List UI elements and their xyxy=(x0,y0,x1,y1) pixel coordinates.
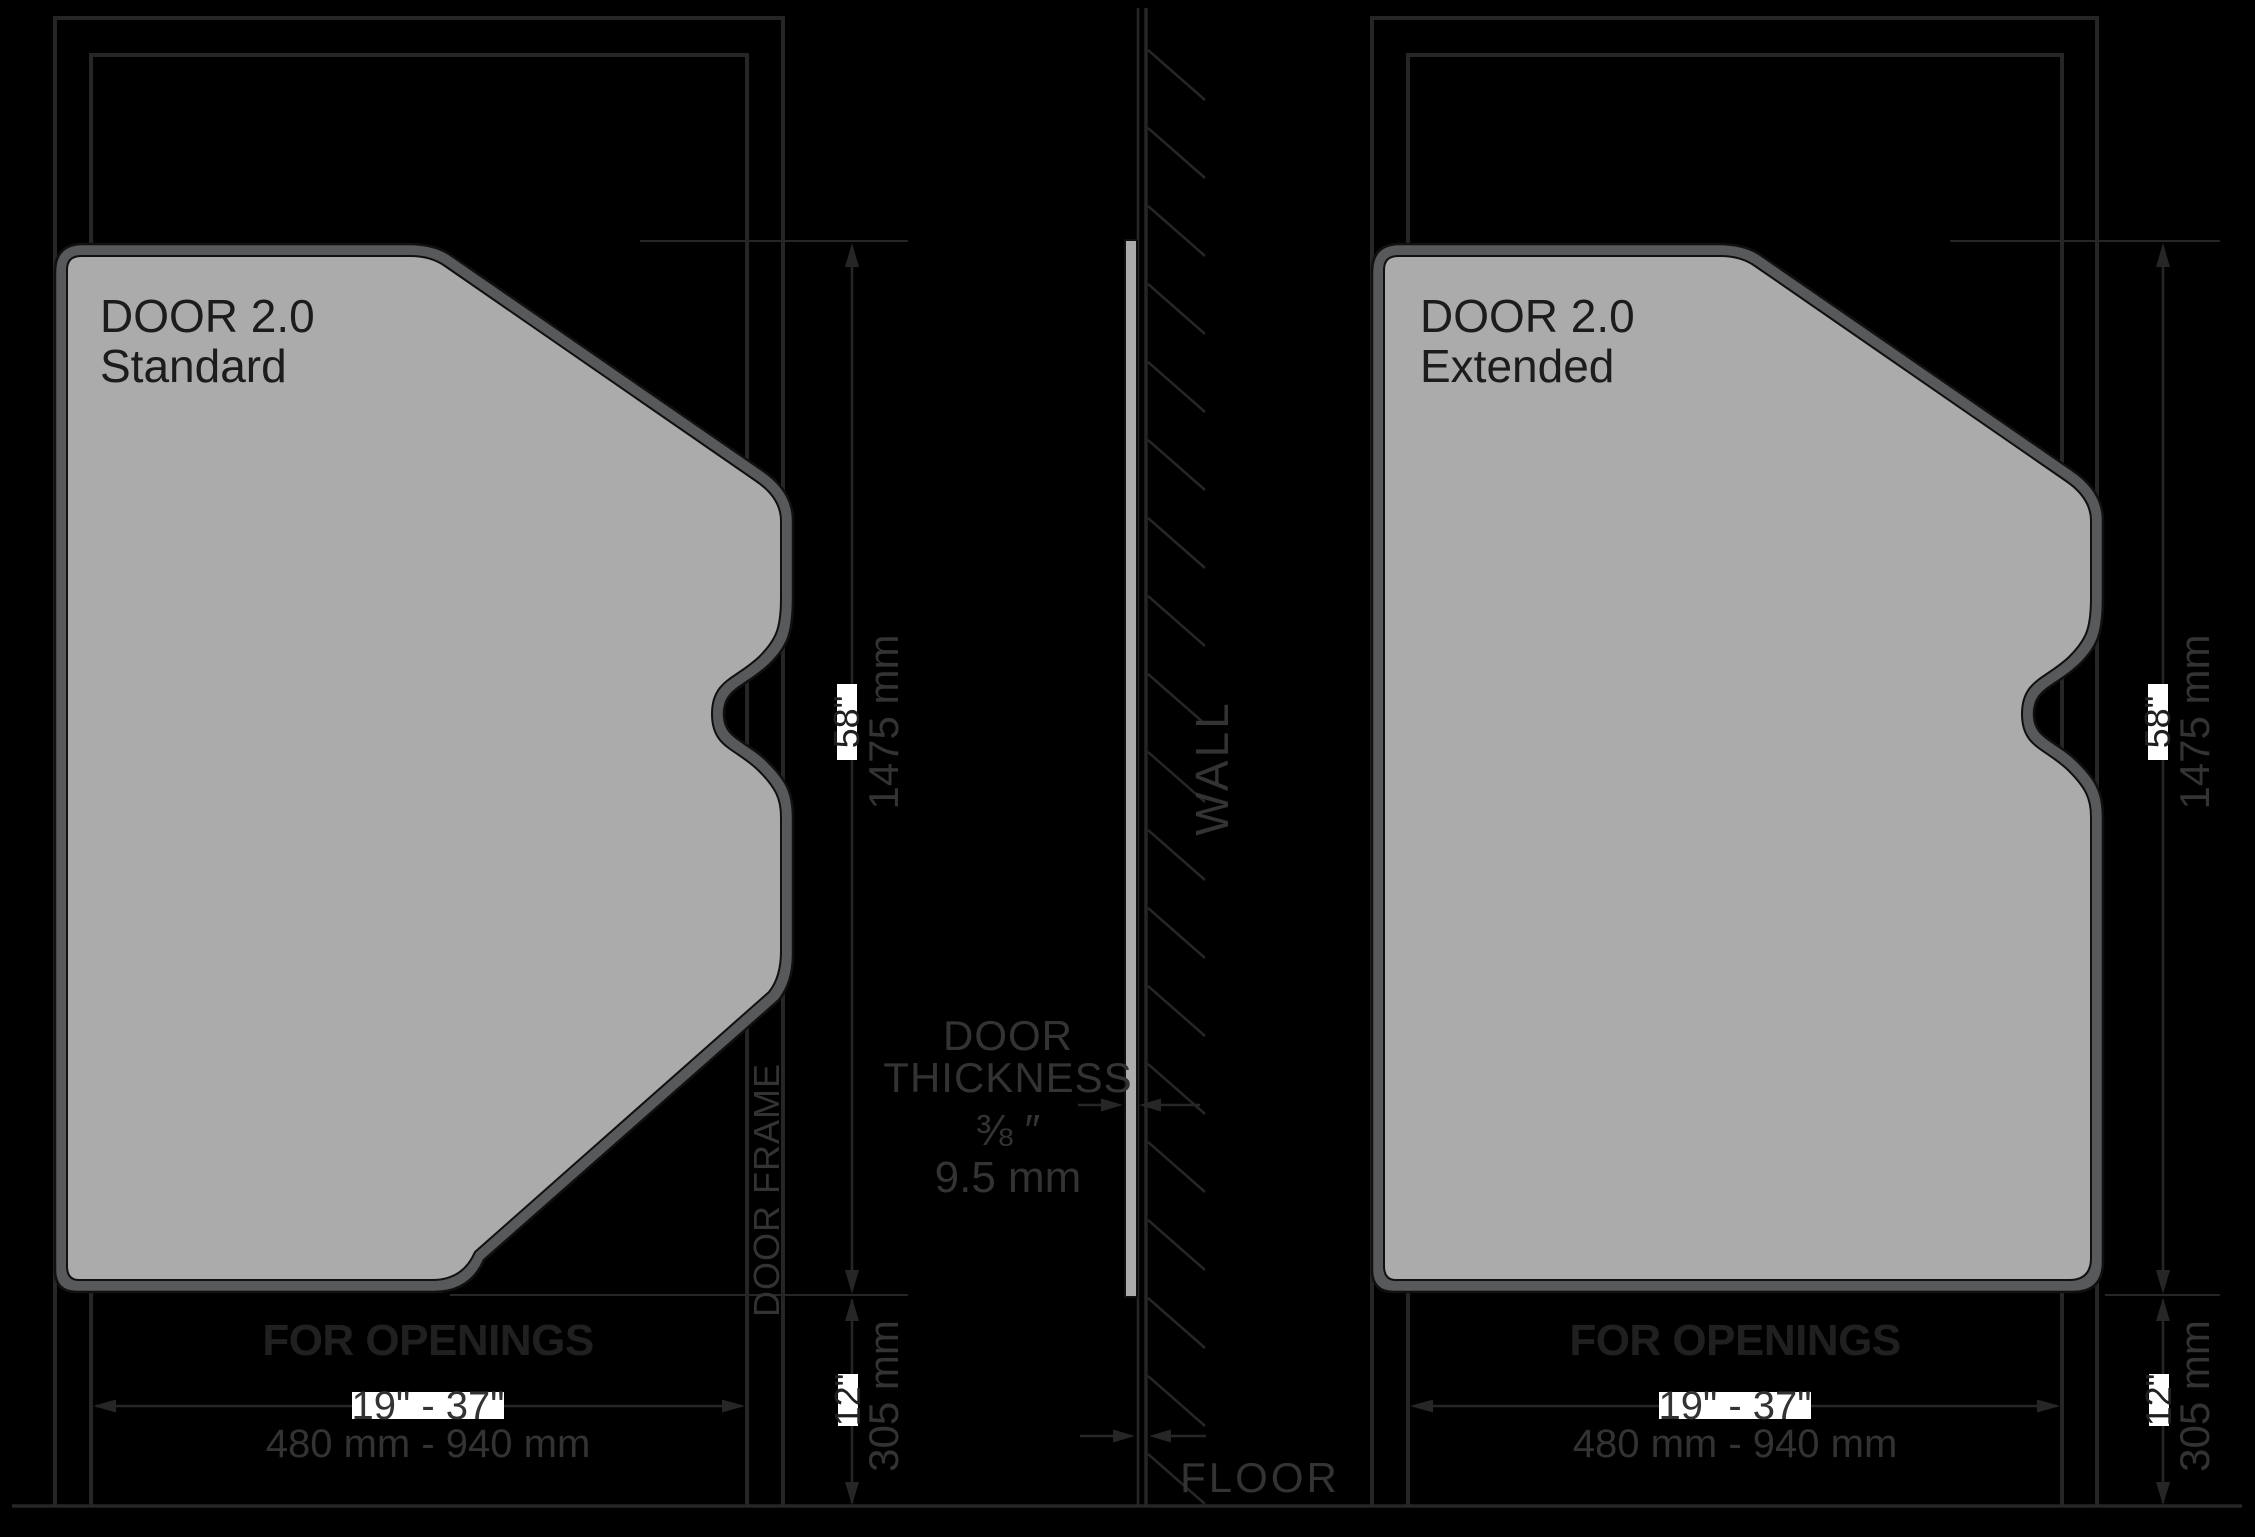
hatch-mark xyxy=(1148,362,1205,412)
door-frame-label: DOOR FRAME xyxy=(746,1063,787,1317)
hatch-mark xyxy=(1148,206,1205,256)
right-opening-width-dimension: FOR OPENINGS 19" - 37" 480 mm - 940 mm xyxy=(1410,1316,2060,1466)
right-opening-range-mm: 480 mm - 940 mm xyxy=(1573,1422,1898,1466)
left-door-title: DOOR 2.0 xyxy=(100,290,315,342)
left-bottom-gap-dimension: 12" 305 mm xyxy=(827,1298,907,1505)
door-thickness-inches: ⅜ ″ xyxy=(976,1106,1041,1155)
door-thickness-callout: DOOR THICKNESS ⅜ ″ 9.5 mm xyxy=(883,1012,1200,1202)
right-door-subtitle: Extended xyxy=(1420,340,1614,392)
hatch-mark xyxy=(1148,986,1205,1036)
diagram-canvas: 58" 1475 mm 12" 305 mm FOR OPENINGS 19" … xyxy=(0,0,2255,1537)
right-bottom-gap-dimension: 12" 305 mm xyxy=(2138,1298,2218,1505)
hatch-mark xyxy=(1148,284,1205,334)
technical-drawing-door-dimensions: 58" 1475 mm 12" 305 mm FOR OPENINGS 19" … xyxy=(0,0,2255,1537)
hatch-mark xyxy=(1148,128,1205,178)
door-profile-side-view xyxy=(1125,240,1137,1297)
door-thickness-label-1: DOOR xyxy=(943,1012,1073,1059)
hatch-mark xyxy=(1148,440,1205,490)
left-door-subtitle: Standard xyxy=(100,340,287,392)
left-for-openings-label: FOR OPENINGS xyxy=(262,1316,593,1365)
right-bottom-gap-mm: 305 mm xyxy=(2171,1320,2218,1472)
door-thickness-label-2: THICKNESS xyxy=(883,1054,1132,1101)
floor-label: FLOOR xyxy=(1180,1454,1340,1501)
left-height-mm: 1475 mm xyxy=(860,634,907,809)
hatch-mark xyxy=(1148,908,1205,958)
left-door-standard: DOOR 2.0 Standard xyxy=(55,244,793,1292)
right-for-openings-label: FOR OPENINGS xyxy=(1569,1316,1900,1365)
hatch-mark xyxy=(1148,1220,1205,1270)
right-height-mm: 1475 mm xyxy=(2171,634,2218,809)
hatch-mark xyxy=(1148,596,1205,646)
wall-label: WALL xyxy=(1186,700,1238,836)
hatch-mark xyxy=(1148,830,1205,880)
hatch-mark xyxy=(1148,50,1205,100)
wall-thickness-arrows xyxy=(1080,1430,1206,1443)
right-door-title: DOOR 2.0 xyxy=(1420,290,1635,342)
left-opening-width-dimension: FOR OPENINGS 19" - 37" 480 mm - 940 mm xyxy=(93,1316,745,1466)
hatch-mark xyxy=(1148,1142,1205,1192)
right-door-extended: DOOR 2.0 Extended xyxy=(1372,244,2103,1292)
left-bottom-gap-mm: 305 mm xyxy=(860,1320,907,1472)
door-thickness-mm: 9.5 mm xyxy=(935,1153,1082,1202)
hatch-mark xyxy=(1148,1376,1205,1426)
left-opening-range-mm: 480 mm - 940 mm xyxy=(266,1422,591,1466)
hatch-mark xyxy=(1148,1298,1205,1348)
hatch-mark xyxy=(1148,518,1205,568)
